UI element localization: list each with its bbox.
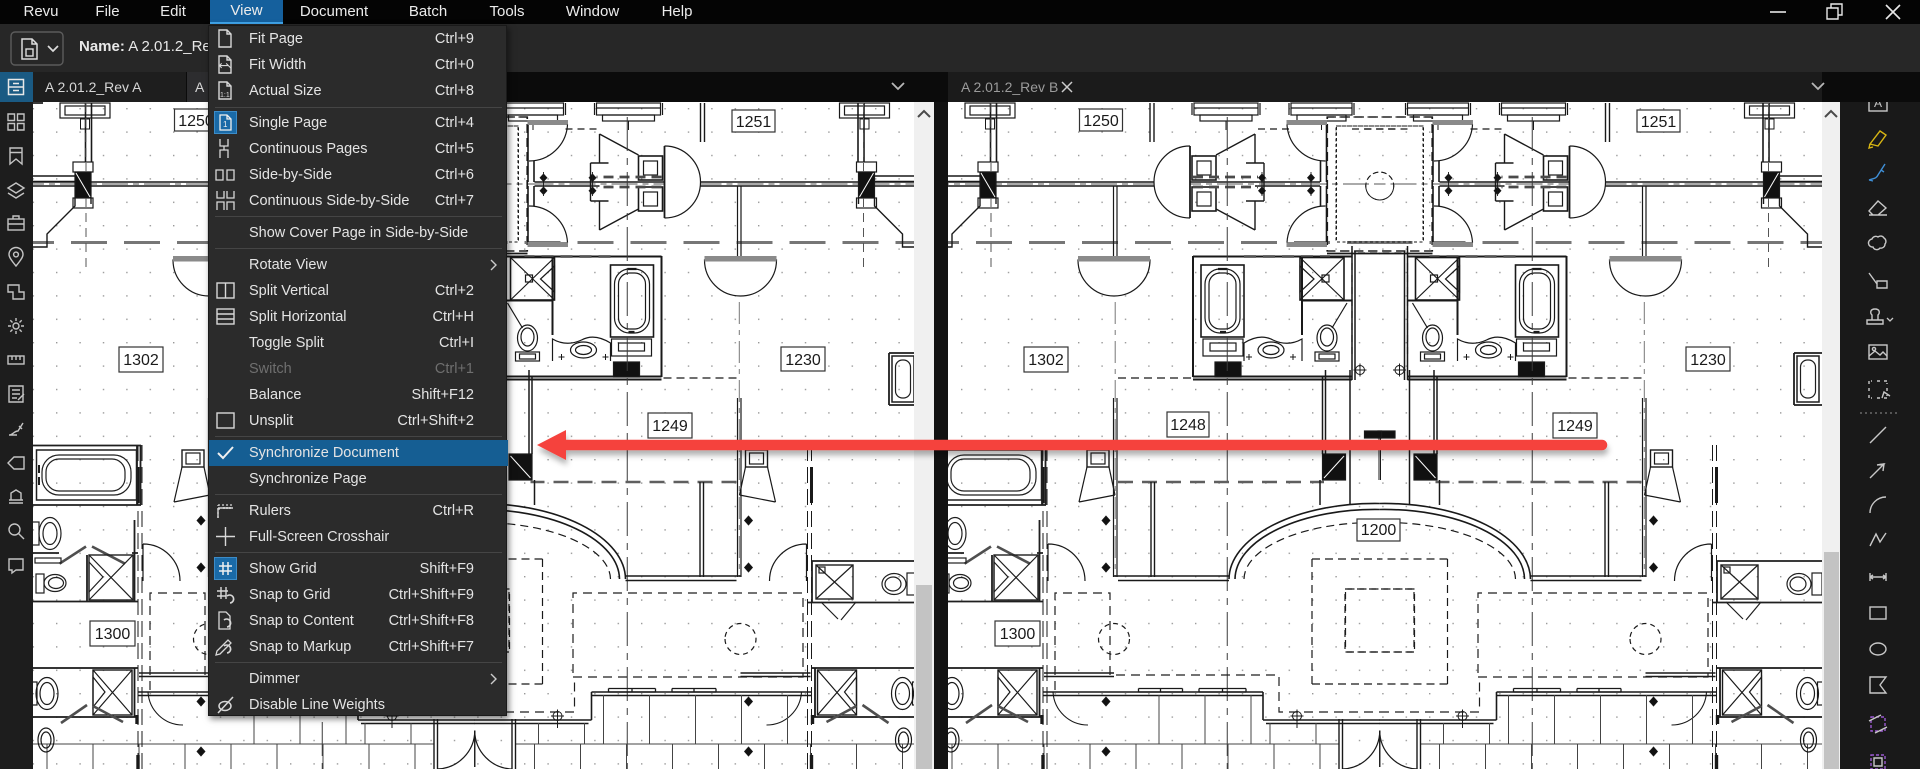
svg-text:1:1: 1:1 bbox=[220, 92, 230, 99]
svg-text:1: 1 bbox=[223, 120, 228, 129]
